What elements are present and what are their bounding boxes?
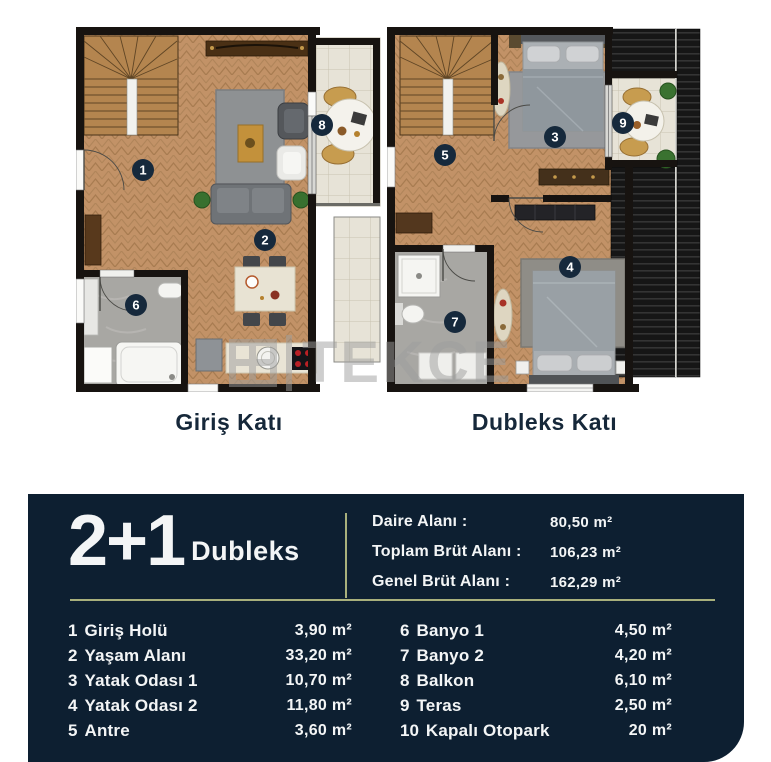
room-number: 1 — [68, 621, 77, 641]
info-panel: 2+1 Dubleks Daire Alanı : 80,50 m² Topla… — [28, 494, 744, 762]
room-area: 3,90 m² — [295, 622, 352, 640]
armchair-dark — [278, 103, 309, 139]
summary-value: 162,29 m² — [550, 574, 621, 591]
svg-text:5: 5 — [441, 148, 448, 163]
room-list-column-2: 6 Banyo 1 4,50 m² 7 Banyo 2 4,20 m² 8 Ba… — [400, 618, 672, 743]
hall-cabinet — [85, 215, 101, 265]
tv-console — [206, 41, 308, 56]
room-row: 9 Teras 2,50 m² — [400, 693, 672, 718]
summary-row: Toplam Brüt Alanı : 106,23 m² — [372, 537, 712, 567]
plan-caption-upper: Dubleks Katı — [387, 409, 702, 436]
room-name: Antre — [84, 721, 294, 741]
svg-text:7: 7 — [451, 315, 458, 330]
area-summary: Daire Alanı : 80,50 m² Toplam Brüt Alanı… — [372, 507, 712, 597]
room-row: 1 Giriş Holü 3,90 m² — [68, 618, 352, 643]
summary-value: 80,50 m² — [550, 514, 612, 531]
room-number: 9 — [400, 696, 409, 716]
room-row: 5 Antre 3,60 m² — [68, 718, 352, 743]
room-name: Yaşam Alanı — [84, 646, 285, 666]
room-name: Balkon — [416, 671, 614, 691]
vertical-divider — [345, 513, 347, 598]
toilet — [158, 283, 183, 298]
unit-number: 2+1 — [68, 508, 184, 574]
balcony-parapet — [316, 203, 380, 206]
armchair-white — [277, 146, 306, 180]
summary-label: Daire Alanı : — [372, 513, 550, 531]
room-badge-balcony: 8 — [311, 114, 333, 136]
nightstand — [516, 361, 529, 374]
room-row: 10 Kapalı Otopark 20 m² — [400, 718, 672, 743]
room-row: 2 Yaşam Alanı 33,20 m² — [68, 643, 352, 668]
room-badge-bath1: 6 — [125, 294, 147, 316]
hall-cabinet — [396, 213, 432, 233]
room-area: 33,20 m² — [286, 647, 352, 665]
nightstand — [509, 35, 521, 48]
room-number: 5 — [68, 721, 77, 741]
vanity — [84, 279, 98, 335]
coffee-table — [238, 125, 263, 162]
bathtub — [116, 342, 182, 387]
room-row: 8 Balkon 6,10 m² — [400, 668, 672, 693]
staircase — [84, 36, 178, 135]
room-list: 1 Giriş Holü 3,90 m² 2 Yaşam Alanı 33,20… — [68, 618, 672, 743]
side-table — [494, 289, 512, 341]
room-badge-antre: 5 — [434, 144, 456, 166]
svg-text:9: 9 — [619, 116, 626, 131]
horizontal-divider — [70, 599, 715, 601]
unit-title: 2+1 Dubleks — [68, 508, 300, 574]
pillow — [537, 355, 572, 371]
plant — [293, 192, 309, 208]
toilet — [402, 305, 424, 323]
summary-label: Genel Brüt Alanı : — [372, 573, 550, 591]
bath-cabinet — [84, 347, 112, 383]
summary-row: Daire Alanı : 80,50 m² — [372, 507, 712, 537]
svg-text:3: 3 — [551, 130, 558, 145]
pillow — [566, 46, 599, 62]
svg-text:2: 2 — [261, 233, 268, 248]
unit-label: Dubleks — [191, 536, 300, 567]
plant — [660, 83, 676, 99]
plan-caption-ground: Giriş Katı — [76, 409, 382, 436]
room-area: 6,10 m² — [615, 672, 672, 690]
svg-text:6: 6 — [132, 298, 139, 313]
bed-blanket — [523, 69, 603, 131]
summary-value: 106,23 m² — [550, 544, 621, 561]
room-number: 3 — [68, 671, 77, 691]
room-area: 4,20 m² — [615, 647, 672, 665]
room-area: 20 m² — [629, 722, 672, 740]
room-number: 10 — [400, 721, 419, 741]
room-badge-hall: 1 — [132, 159, 154, 181]
room-name: Banyo 2 — [416, 646, 614, 666]
wardrobe — [515, 205, 595, 220]
room-badge-bedroom2: 4 — [559, 256, 581, 278]
bath-mat — [419, 353, 452, 379]
pillow — [527, 46, 560, 62]
summary-label: Toplam Brüt Alanı : — [372, 543, 550, 561]
bed-headboard — [529, 375, 619, 384]
room-area: 11,80 m² — [286, 697, 352, 715]
pillow — [577, 355, 612, 371]
room-number: 4 — [68, 696, 77, 716]
sofa — [211, 184, 291, 224]
room-area: 2,50 m² — [615, 697, 672, 715]
room-badge-living: 2 — [254, 229, 276, 251]
summary-row: Genel Brüt Alanı : 162,29 m² — [372, 567, 712, 597]
room-name: Teras — [416, 696, 614, 716]
room-row: 4 Yatak Odası 2 11,80 m² — [68, 693, 352, 718]
floor-plan-sheet: { "colors": { "panel_bg": "#0d1f31", "di… — [0, 0, 771, 762]
room-area: 10,70 m² — [286, 672, 352, 690]
room-name: Kapalı Otopark — [426, 721, 629, 741]
room-name: Yatak Odası 1 — [84, 671, 285, 691]
room-row: 6 Banyo 1 4,50 m² — [400, 618, 672, 643]
room-area: 3,60 m² — [295, 722, 352, 740]
room-badge-terrace: 9 — [612, 112, 634, 134]
svg-text:8: 8 — [318, 118, 325, 133]
room-name: Banyo 1 — [416, 621, 614, 641]
room-badge-bath2: 7 — [444, 311, 466, 333]
side-terrace-floor — [334, 217, 380, 362]
room-name: Giriş Holü — [84, 621, 294, 641]
plant — [194, 192, 210, 208]
svg-text:4: 4 — [566, 260, 574, 275]
room-number: 2 — [68, 646, 77, 666]
bath-mat — [456, 353, 486, 379]
floor-plan-ground: 1 2 6 8 — [76, 27, 382, 392]
room-area: 4,50 m² — [615, 622, 672, 640]
floor-plan-upper: 3 4 5 7 9 — [387, 27, 702, 392]
kitchen-counter — [196, 339, 316, 373]
room-name: Yatak Odası 2 — [84, 696, 286, 716]
room-number: 8 — [400, 671, 409, 691]
staircase — [400, 36, 494, 135]
svg-text:1: 1 — [139, 163, 146, 178]
room-number: 6 — [400, 621, 409, 641]
room-list-column-1: 1 Giriş Holü 3,90 m² 2 Yaşam Alanı 33,20… — [68, 618, 352, 743]
room-badge-bedroom1: 3 — [544, 126, 566, 148]
room-number: 7 — [400, 646, 409, 666]
room-row: 7 Banyo 2 4,20 m² — [400, 643, 672, 668]
room-row: 3 Yatak Odası 1 10,70 m² — [68, 668, 352, 693]
